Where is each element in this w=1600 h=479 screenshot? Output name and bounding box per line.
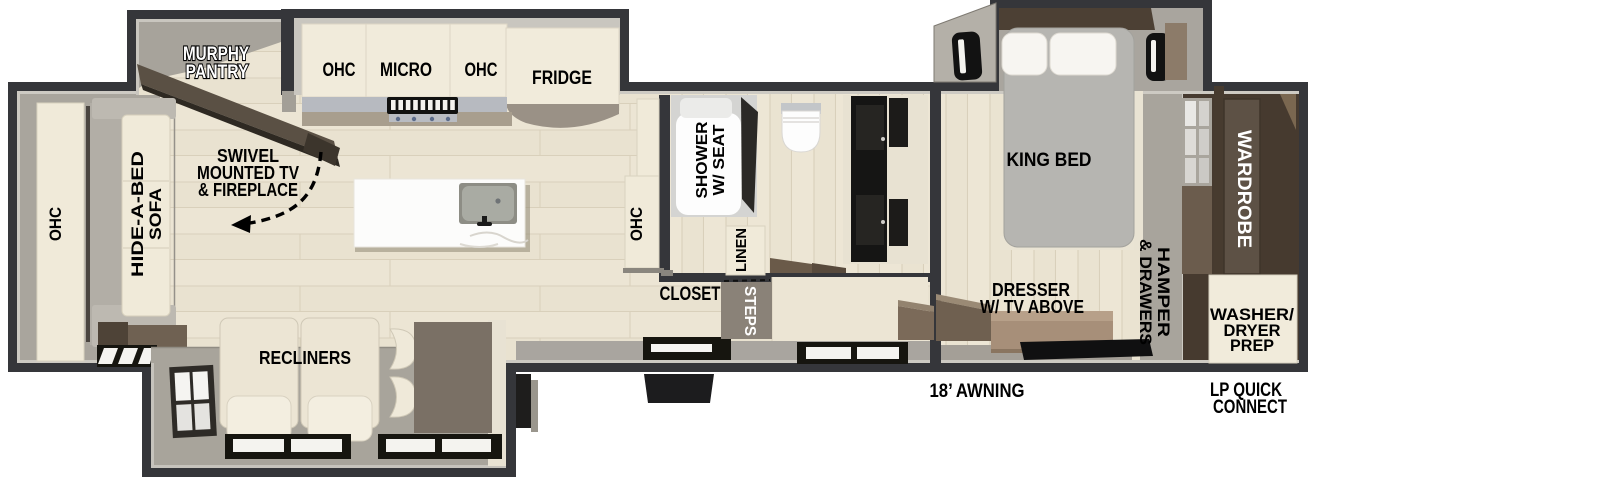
svg-text:LINEN: LINEN — [733, 228, 750, 272]
svg-text:CONNECT: CONNECT — [1213, 397, 1287, 418]
svg-text:OHC: OHC — [465, 60, 498, 81]
svg-text:W/ TV ABOVE: W/ TV ABOVE — [980, 297, 1084, 317]
svg-text:KING BED: KING BED — [1007, 150, 1092, 171]
svg-text:PREP: PREP — [1230, 336, 1274, 355]
svg-text:RECLINERS: RECLINERS — [259, 348, 351, 368]
svg-text:W/ SEAT: W/ SEAT — [711, 124, 728, 195]
svg-text:SHOWER: SHOWER — [694, 121, 711, 198]
svg-text:& FIREPLACE: & FIREPLACE — [198, 180, 298, 200]
svg-text:HAMPER: HAMPER — [1154, 247, 1173, 337]
svg-text:OHC: OHC — [323, 60, 356, 81]
svg-text:MICRO: MICRO — [380, 60, 432, 81]
svg-text:OHC: OHC — [627, 207, 646, 241]
svg-text:STEPS: STEPS — [741, 286, 758, 336]
svg-text:SOFA: SOFA — [146, 188, 165, 240]
svg-text:HIDE-A-BED: HIDE-A-BED — [128, 151, 147, 277]
svg-text:WARDROBE: WARDROBE — [1233, 130, 1254, 248]
svg-text:PANTRY: PANTRY — [186, 62, 249, 83]
svg-text:& DRAWERS: & DRAWERS — [1136, 239, 1155, 345]
svg-text:CLOSET: CLOSET — [660, 284, 721, 305]
svg-text:FRIDGE: FRIDGE — [532, 68, 592, 89]
svg-text:18’ AWNING: 18’ AWNING — [930, 381, 1025, 402]
svg-text:OHC: OHC — [46, 207, 65, 241]
